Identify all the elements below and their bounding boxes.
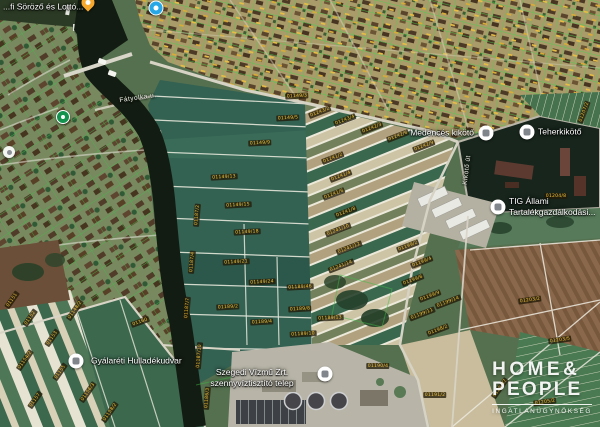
poi-icon	[524, 129, 531, 136]
watermark-line1: HOME&	[492, 360, 592, 380]
poi-icon	[61, 115, 65, 119]
szegedi-vizmu-marker[interactable]	[318, 367, 333, 382]
watermark-line2: PEOPLE	[492, 380, 592, 400]
poi-icon	[86, 0, 91, 5]
small-white-place-marker[interactable]	[3, 146, 15, 158]
map-canvas[interactable]: 01149/301149/501149/901149/1301149/15011…	[0, 0, 600, 427]
poi-icon	[154, 6, 159, 11]
teherkikoto-marker[interactable]	[520, 125, 535, 140]
tig-allami-marker[interactable]	[491, 200, 506, 215]
poi-icon	[7, 150, 12, 155]
watermark-divider	[492, 404, 592, 405]
poi-icon	[322, 371, 329, 378]
agency-watermark: HOME& PEOPLE INGATLANÜGYNÖKSÉG	[492, 360, 592, 415]
gyalareti-hulladekudvar-marker[interactable]	[69, 354, 84, 369]
poi-icon	[73, 358, 80, 365]
watermark-tagline: INGATLANÜGYNÖKSÉG	[492, 408, 592, 415]
park-place-marker[interactable]	[56, 110, 70, 124]
poi-icon	[483, 130, 490, 137]
poi-icon	[495, 204, 502, 211]
medences-kikoto-marker[interactable]	[479, 126, 494, 141]
blue-place-marker[interactable]	[149, 1, 164, 16]
